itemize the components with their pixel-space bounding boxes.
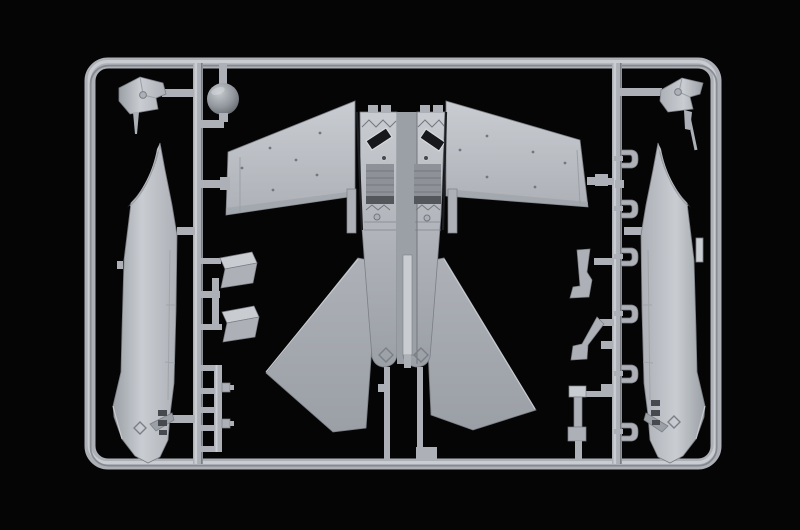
wheel-well-right [414, 164, 441, 204]
sprue-gate [177, 227, 195, 235]
flap-fairing-right [448, 189, 457, 233]
gear-slot [652, 420, 660, 425]
strut-foot [575, 441, 582, 460]
sprue-stick-nub [378, 384, 384, 392]
tail-cone [404, 355, 411, 368]
runner-gate-tab [601, 341, 613, 349]
sprue-stick [417, 367, 423, 449]
tail-spine [403, 255, 412, 355]
gear-slot [158, 420, 167, 426]
strut-clevis [569, 386, 586, 397]
detail-circle [374, 214, 380, 220]
windscreen-hole [675, 89, 682, 96]
sprue-gate [219, 63, 227, 85]
gear-slot [159, 430, 167, 435]
strut-shaft [574, 397, 582, 427]
gear-slot [651, 410, 660, 416]
sprue-gate-block [220, 177, 230, 190]
top-tab [368, 105, 378, 113]
side-tab [696, 238, 703, 262]
gear-slot [651, 400, 660, 406]
gear-slot [158, 410, 167, 416]
sprue-gate [606, 178, 614, 185]
wheel-well-left [366, 164, 394, 204]
windscreen-hole [140, 92, 147, 99]
top-tab [381, 105, 391, 113]
flap-fairing-left [347, 189, 356, 233]
sprue-stick [384, 367, 390, 459]
runner-gate-tab [601, 384, 613, 392]
sub-runner [214, 365, 222, 452]
sprue-gate [200, 324, 222, 330]
photo-stage [0, 0, 800, 530]
detail-circle [424, 215, 430, 221]
sprue-gate [585, 391, 613, 397]
sprue-gate [594, 258, 614, 265]
top-tab [420, 105, 430, 113]
runner-gate-tab [615, 180, 624, 188]
engine-trunks [357, 105, 446, 368]
sprue-photo [0, 0, 800, 530]
sprue-stick-foot [416, 447, 437, 459]
sprue-gate [162, 89, 194, 97]
sprue-gate [620, 88, 662, 96]
side-tab [117, 261, 123, 269]
sprue-gate [200, 258, 221, 264]
top-tab [433, 105, 443, 113]
strut-block [568, 427, 586, 441]
